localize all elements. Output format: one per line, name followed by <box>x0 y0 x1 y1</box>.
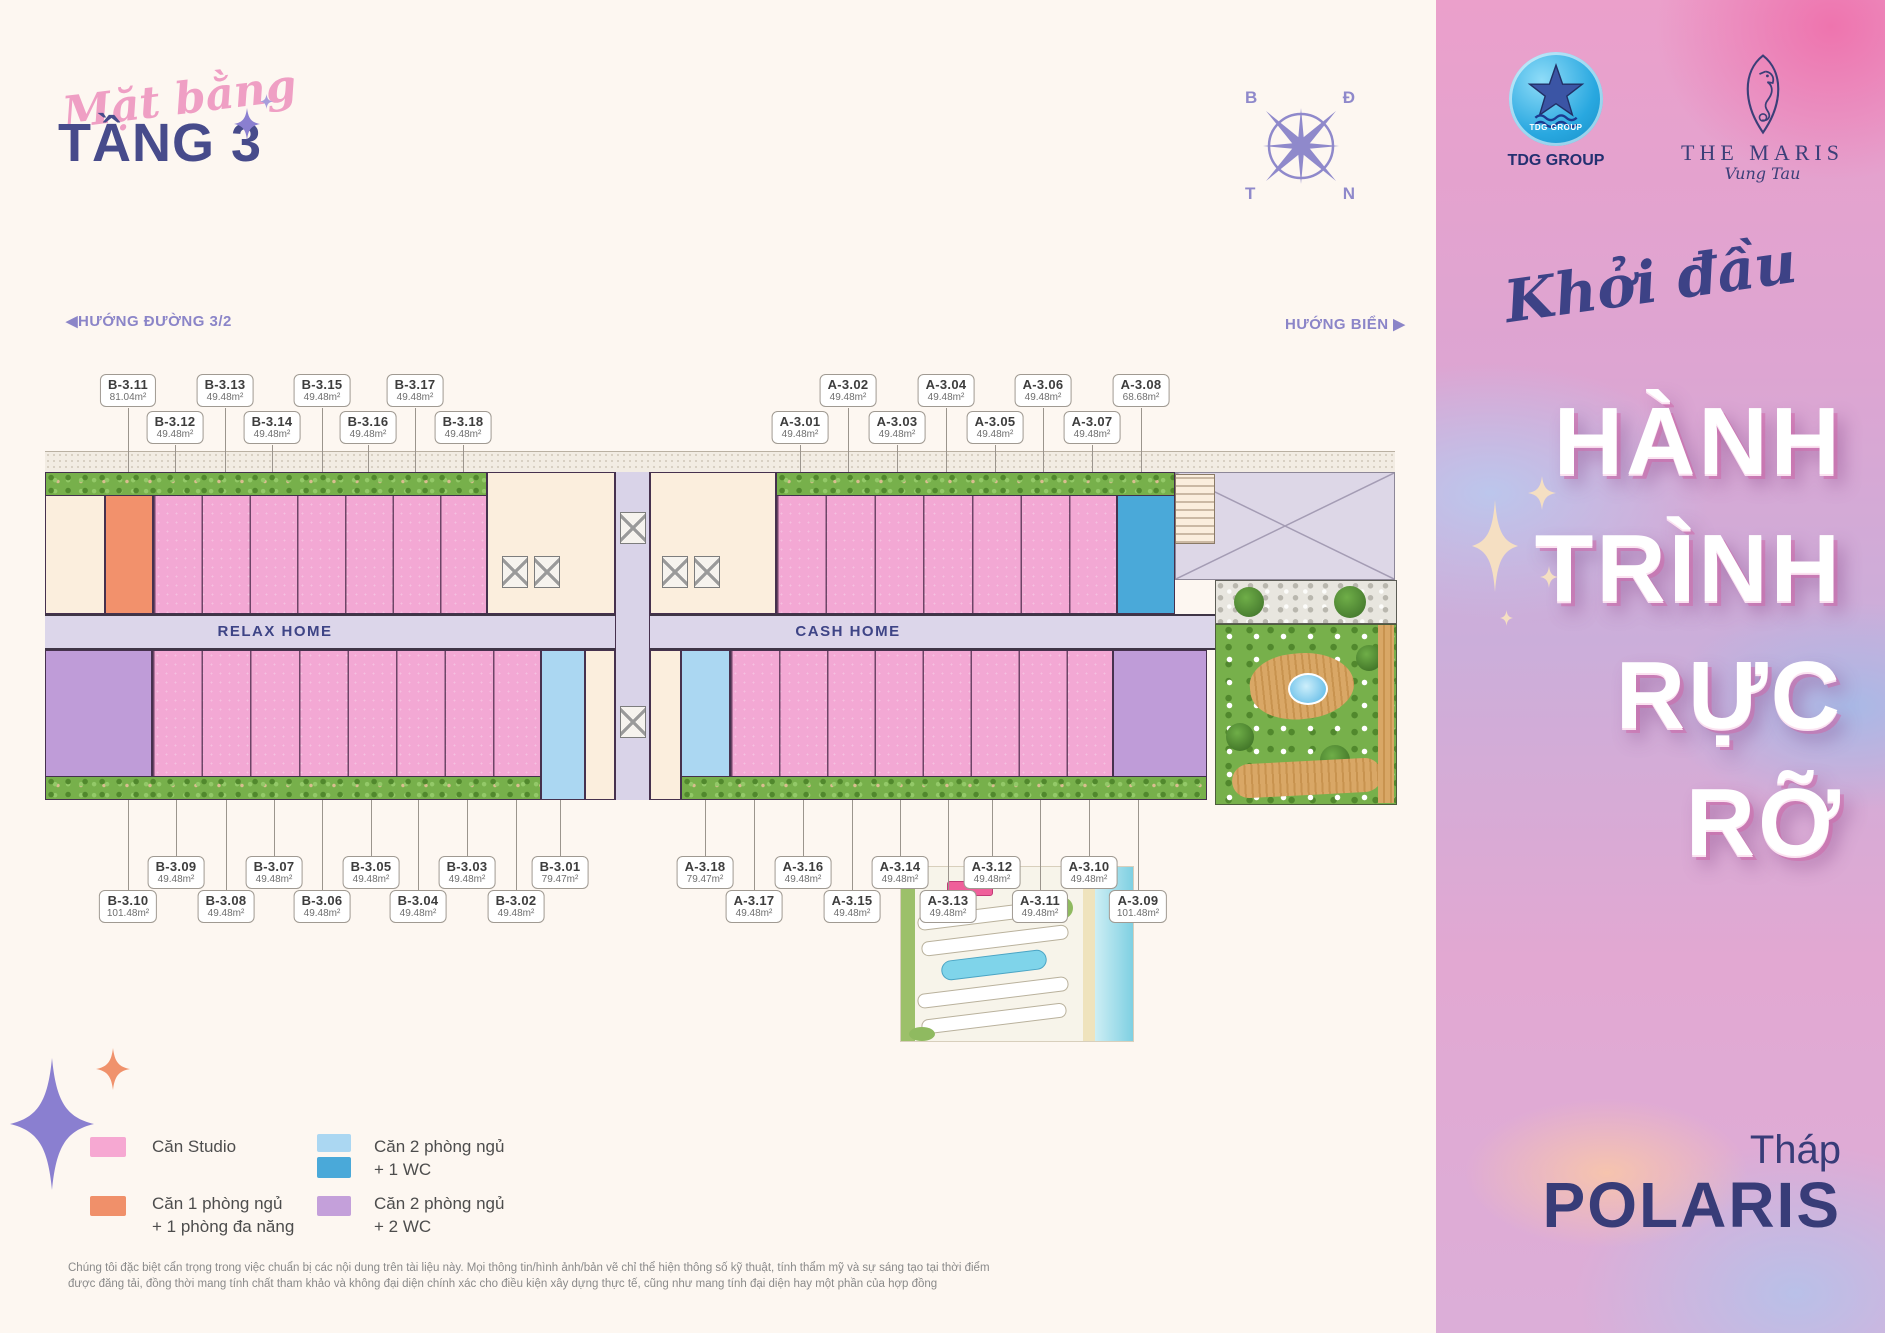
legend-swatch-1br <box>90 1196 126 1216</box>
unit-label: B-3.0249.48m² <box>488 890 545 923</box>
legend-swatch-studio <box>90 1137 126 1157</box>
sparkle-icon <box>1500 610 1513 626</box>
core-bottom-left <box>585 650 615 800</box>
tower-label: Tháp <box>1750 1128 1841 1173</box>
leader-line <box>516 800 517 890</box>
legend-label-2br1wc: Căn 2 phòng ngủ+ 1 WC <box>374 1135 504 1181</box>
leader-line <box>852 800 853 890</box>
amenity-gravel-band <box>1215 580 1397 624</box>
elevator-icon <box>694 556 720 588</box>
sparkle-icon <box>1472 500 1518 592</box>
compass-icon: B Đ T N <box>1251 96 1351 196</box>
sparkle-icon <box>96 1048 130 1090</box>
unit-label: A-3.0868.68m² <box>1113 374 1170 407</box>
leader-line <box>226 800 227 890</box>
legend-label-1br: Căn 1 phòng ngủ+ 1 phòng đa năng <box>152 1192 294 1238</box>
unit-label: A-3.0649.48m² <box>1015 374 1072 407</box>
maris-city: Vung Tau <box>1655 164 1870 183</box>
elevator-icon <box>662 556 688 588</box>
garden-fringe-top-right <box>776 472 1175 496</box>
sparkle-icon <box>1528 476 1556 510</box>
unit-label: A-3.1649.48m² <box>775 856 832 889</box>
garden-fringe-top-left <box>45 472 487 496</box>
tdg-badge-text: TDG GROUP <box>1509 123 1603 132</box>
leader-line <box>322 800 323 890</box>
maris-logo: THE MARIS Vung Tau <box>1655 52 1870 183</box>
left-arrow-icon: ◀ <box>66 313 78 330</box>
core-bottom-right <box>650 650 681 800</box>
compass-se-label: N <box>1343 184 1355 204</box>
unit-label: B-3.0179.47m² <box>532 856 589 889</box>
unit-label: B-3.0549.48m² <box>343 856 400 889</box>
garden-fringe-bottom-left <box>45 776 541 800</box>
elevator-icon <box>534 556 560 588</box>
corridor-label-relax-home: RELAX HOME <box>217 623 332 640</box>
legend-label-studio: Căn Studio <box>152 1135 236 1158</box>
maris-name: THE MARIS <box>1655 140 1870 166</box>
unit-label: B-3.0649.48m² <box>294 890 351 923</box>
legend-swatch-2br2wc <box>317 1196 351 1216</box>
unit-label: A-3.0349.48m² <box>869 411 926 444</box>
leader-line <box>754 800 755 890</box>
pool <box>1288 673 1328 705</box>
leader-line <box>467 800 468 856</box>
unit-label: A-3.0449.48m² <box>918 374 975 407</box>
right-arrow-icon: ▶ <box>1393 316 1405 333</box>
unit-bottom-2br1wc-left <box>541 650 585 800</box>
sidebar-panel: TDG GROUP TDG GROUP THE MARIS Vung Tau K… <box>1436 0 1885 1333</box>
corridor-label-cash-home: CASH HOME <box>795 623 900 640</box>
legend-swatch-2br1wc-dark <box>317 1157 351 1178</box>
unit-label: A-3.0249.48m² <box>820 374 877 407</box>
sparkle-icon <box>260 94 273 109</box>
unit-label: B-3.1849.48m² <box>435 411 492 444</box>
unit-label: B-3.1181.04m² <box>100 374 156 407</box>
unit-label: B-3.1749.48m² <box>387 374 444 407</box>
sparkle-icon <box>10 1058 94 1190</box>
plan-boundary-strip <box>45 451 1395 474</box>
unit-label: B-3.0349.48m² <box>439 856 496 889</box>
compass-nw-label: B <box>1245 88 1257 108</box>
direction-road-label: ◀HƯỚNG ĐƯỜNG 3/2 <box>66 312 232 330</box>
unit-label: A-3.1749.48m² <box>726 890 783 923</box>
tdg-caption: TDG GROUP <box>1495 152 1617 170</box>
site-pool <box>940 949 1048 982</box>
leader-line <box>705 800 706 856</box>
unit-label: B-3.1549.48m² <box>294 374 351 407</box>
leader-line <box>803 800 804 856</box>
unit-label: A-3.1879.47m² <box>677 856 734 889</box>
stair-core <box>1175 474 1215 544</box>
unit-label: B-3.1649.48m² <box>340 411 397 444</box>
legend-swatch-2br1wc-light <box>317 1134 351 1152</box>
compass-ne-label: Đ <box>1343 88 1355 108</box>
site-map-thumbnail <box>900 866 1134 1042</box>
disclaimer: Chúng tôi đặc biệt cẩn trọng trong việc … <box>68 1260 1218 1292</box>
tagline-script: Khởi đầu <box>1433 218 1867 345</box>
leader-line <box>176 800 177 856</box>
unit-label: B-3.0449.48m² <box>390 890 447 923</box>
tower-name: POLARIS <box>1543 1168 1841 1242</box>
unit-label: A-3.1549.48m² <box>824 890 881 923</box>
unit-label: A-3.0549.48m² <box>967 411 1024 444</box>
garden-fringe-bottom-right <box>681 776 1207 800</box>
elevator-icon <box>620 706 646 738</box>
legend-label-2br2wc: Căn 2 phòng ngủ+ 2 WC <box>374 1192 504 1238</box>
elevator-icon <box>502 556 528 588</box>
core-top-right <box>650 472 776 614</box>
highlight-building <box>947 881 993 896</box>
unit-label: A-3.0749.48m² <box>1064 411 1121 444</box>
leader-line <box>128 800 129 890</box>
headline: HÀNH TRÌNH RỰC RỠ <box>1436 378 1843 886</box>
leader-line <box>371 800 372 856</box>
direction-sea-label: HƯỚNG BIỂN ▶ <box>1285 315 1405 333</box>
leader-line <box>1138 800 1139 890</box>
leader-line <box>900 800 901 856</box>
tdg-logo: TDG GROUP <box>1509 52 1603 146</box>
elevator-icon <box>620 512 646 544</box>
unit-label: B-3.0749.48m² <box>246 856 303 889</box>
leader-line <box>274 800 275 856</box>
sparkle-icon <box>1540 566 1558 588</box>
unit-label: B-3.0949.48m² <box>148 856 205 889</box>
amenity-garden <box>1215 624 1397 805</box>
brochure-page: Mặt bằng TẦNG 3 B Đ T N RELAX HOME C <box>0 0 1885 1333</box>
leader-line <box>560 800 561 856</box>
seahorse-icon <box>1732 52 1794 136</box>
core-top-left <box>487 472 615 614</box>
unit-label: A-3.0149.48m² <box>772 411 829 444</box>
compass-sw-label: T <box>1245 184 1255 204</box>
leader-line <box>418 800 419 890</box>
unit-label: B-3.1449.48m² <box>244 411 301 444</box>
leader-line <box>992 800 993 856</box>
unit-label: B-3.10101.48m² <box>99 890 157 923</box>
unit-label: B-3.1349.48m² <box>197 374 254 407</box>
leader-line <box>1089 800 1090 856</box>
unit-label: B-3.0849.48m² <box>198 890 255 923</box>
page-title: TẦNG 3 <box>58 112 262 174</box>
sparkle-icon <box>234 108 260 140</box>
unit-label: B-3.1249.48m² <box>147 411 204 444</box>
